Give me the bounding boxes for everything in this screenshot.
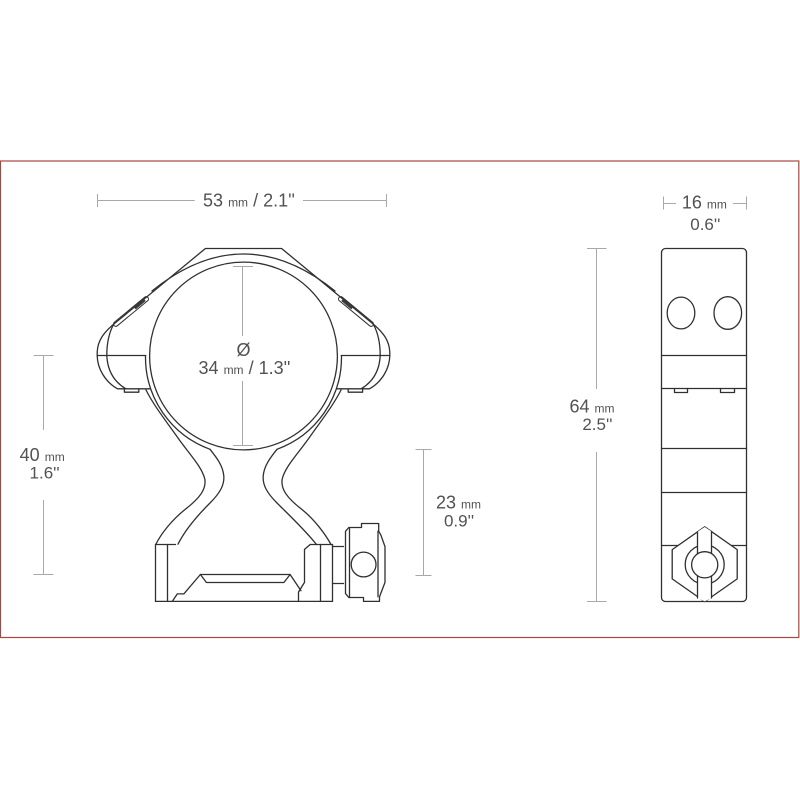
svg-text:2.5'': 2.5'' [582, 415, 612, 434]
svg-text:0.9'': 0.9'' [444, 512, 474, 531]
svg-text:1.6'': 1.6'' [30, 464, 60, 483]
svg-text:34 mm / 1.3'': 34 mm / 1.3'' [199, 358, 291, 378]
svg-text:0.6'': 0.6'' [690, 215, 720, 234]
svg-text:53 mm / 2.1'': 53 mm / 2.1'' [203, 191, 295, 211]
